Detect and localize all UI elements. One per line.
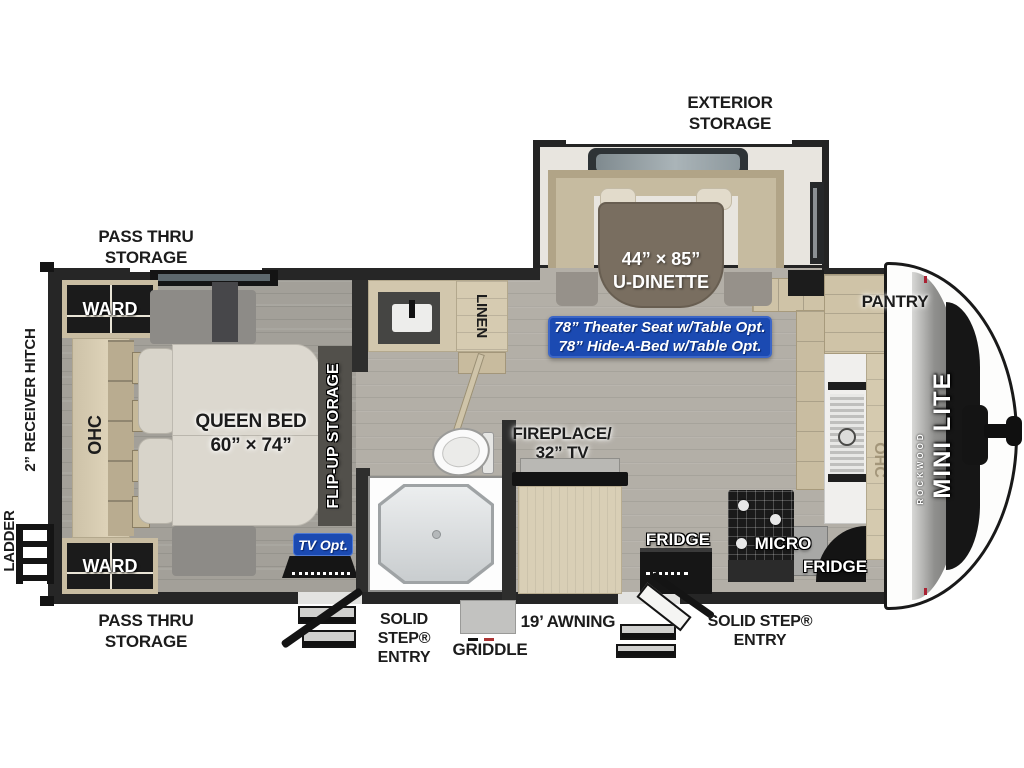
pass-thru-top-line1: PASS THRU — [70, 226, 222, 247]
fireplace-tv-icon — [512, 472, 628, 486]
tv-option-label: TV Opt. — [298, 537, 348, 553]
headboard-drawers — [108, 340, 134, 536]
options-banner: 78” Theater Seat w/Table Opt. 78” Hide-A… — [548, 316, 772, 358]
tongue-jack-coupler-icon — [1006, 416, 1022, 446]
pantry-label: PANTRY — [852, 292, 938, 312]
burner-icon — [738, 500, 749, 511]
solid-step-left-line1: SOLID — [362, 610, 446, 629]
solid-step-left-line2: STEP® — [362, 629, 446, 648]
exterior-storage-line1: EXTERIOR — [650, 92, 810, 113]
rear-ladder-icon — [16, 524, 54, 584]
exterior-storage-line2: STORAGE — [650, 113, 810, 134]
receiver-hitch-label: 2” RECEIVER HITCH — [20, 315, 40, 485]
wardrobe-bottom: WARD — [62, 538, 158, 594]
queen-bed-label-line1: QUEEN BED — [176, 410, 326, 434]
dinette-bench-left — [548, 178, 594, 272]
dinette-size-label: 44” × 85” — [622, 248, 701, 271]
wardrobe-top-label: WARD — [83, 299, 138, 320]
solid-step-entry-right-label: SOLID STEP® ENTRY — [700, 612, 820, 650]
kitchen-sink-icon — [838, 428, 856, 446]
pass-thru-bottom-line1: PASS THRU — [70, 610, 222, 631]
bath-wall-upper — [352, 280, 368, 372]
entertainment-cabinet — [518, 486, 622, 594]
theater-seat-option-label: 78” Theater Seat w/Table Opt. — [554, 318, 765, 337]
solid-step-entry-left-label: SOLID STEP® ENTRY — [362, 610, 446, 667]
tv-mount-dots — [292, 572, 350, 575]
kitchen-window-icon — [788, 270, 824, 296]
bedroom-ohc-label: OHC — [85, 375, 105, 495]
u-dinette-table: 44” × 85” U-DINETTE — [598, 202, 724, 308]
flip-up-storage-label: FLIP-UP STORAGE — [324, 346, 344, 526]
exterior-storage-label: EXTERIOR STORAGE — [650, 92, 810, 134]
bedside-shelf-bottom — [172, 526, 256, 576]
dinette-seat-cushion — [556, 272, 598, 306]
fireplace-label-line1: FIREPLACE/ — [498, 424, 626, 443]
wardrobe-bottom-label: WARD — [83, 556, 138, 577]
fridge-right-label: FRIDGE — [785, 557, 885, 577]
shower-drain-icon — [432, 530, 441, 539]
solid-step-left-line3: ENTRY — [362, 648, 446, 667]
tv-option-badge: TV Opt. — [293, 533, 353, 556]
marker-light-icon — [924, 588, 927, 595]
pass-thru-storage-bottom-label: PASS THRU STORAGE — [70, 610, 222, 652]
fridge-left-label: FRIDGE — [636, 530, 720, 550]
entry-step — [616, 644, 676, 658]
rear-bumper-end — [40, 262, 54, 272]
bedside-cabinet-dark — [212, 282, 238, 342]
kitchen-base-cabinets — [796, 310, 826, 490]
awning-label: 19’ AWNING — [512, 612, 624, 632]
solid-step-right-line1: SOLID STEP® — [700, 612, 820, 631]
wardrobe-top: WARD — [62, 280, 158, 338]
marker-light-icon — [924, 276, 927, 283]
pass-thru-bottom-line2: STORAGE — [70, 631, 222, 652]
queen-bed-label-line2: 60” × 74” — [176, 434, 326, 458]
faucet-icon — [409, 300, 415, 318]
counter-trim — [828, 474, 866, 482]
solid-step-right-line2: ENTRY — [700, 631, 820, 650]
floorplan-canvas: WARD WARD OHC QUEEN BED 60” × 74” FLIP-U… — [0, 0, 1024, 768]
rockwood-logo-text: ROCKWOOD — [914, 418, 926, 518]
ladder-label: LADDER — [0, 501, 19, 581]
dinette-seat-cushion — [724, 272, 772, 306]
pass-thru-top-line2: STORAGE — [70, 247, 222, 268]
dinette-bench-right — [738, 178, 784, 272]
entry-step — [620, 624, 676, 640]
mini-lite-logo-text: MINI LITE — [928, 350, 958, 520]
slideout-window-icon — [810, 182, 824, 264]
griddle-label: GRIDDLE — [445, 640, 535, 660]
pass-thru-storage-top-label: PASS THRU STORAGE — [70, 226, 222, 268]
hide-a-bed-option-label: 78” Hide-A-Bed w/Table Opt. — [559, 337, 762, 356]
bedside-shelf-top — [150, 290, 256, 344]
rear-bumper-end — [40, 596, 54, 606]
micro-label: MICRO — [733, 534, 833, 554]
dinette-name-label: U-DINETTE — [613, 271, 709, 294]
counter-trim — [828, 382, 866, 390]
entry-step — [302, 630, 356, 648]
griddle-icon — [460, 600, 516, 634]
slideout-top-trim — [566, 139, 792, 144]
linen-label: LINEN — [472, 266, 492, 366]
burner-icon — [770, 514, 781, 525]
fireplace-tv-label: FIREPLACE/ 32” TV — [498, 424, 626, 462]
queen-bed-label: QUEEN BED 60” × 74” — [176, 410, 326, 458]
